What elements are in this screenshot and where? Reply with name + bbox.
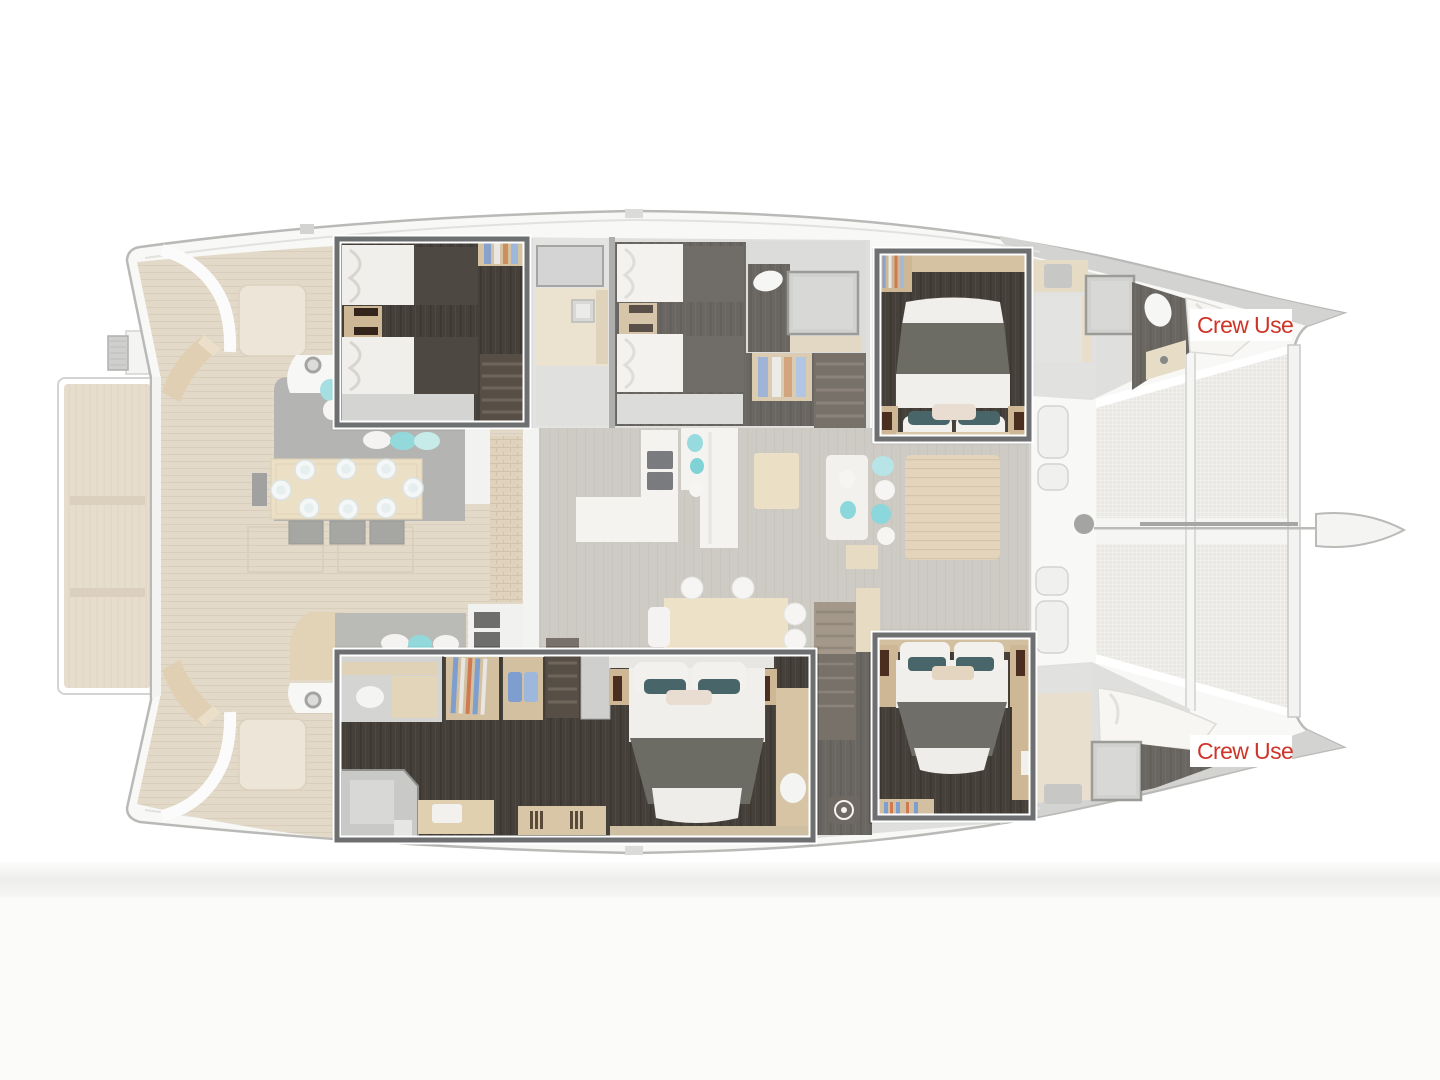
svg-text:Crew Use: Crew Use: [1197, 738, 1293, 764]
svg-text:Crew Use: Crew Use: [1197, 312, 1293, 338]
